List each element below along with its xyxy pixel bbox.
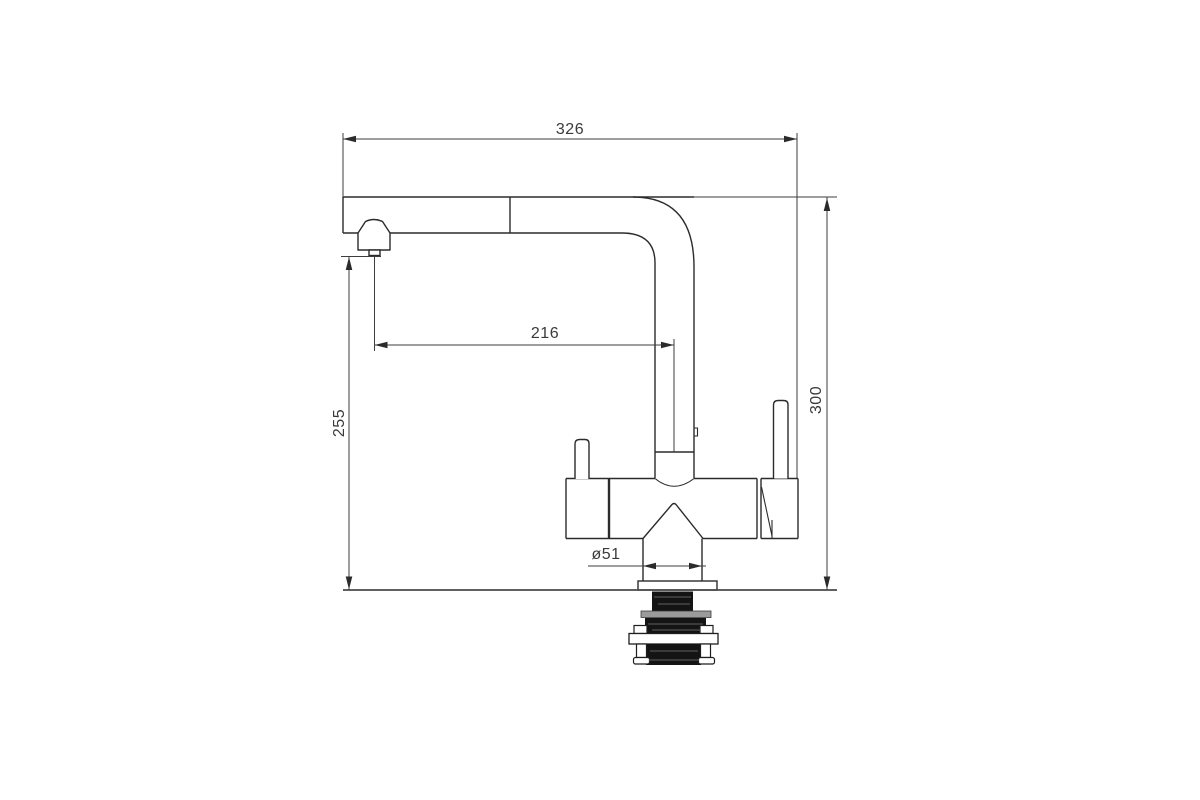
dim-label-overall-width: 326 — [556, 122, 584, 138]
mixer-body — [566, 401, 798, 539]
bolt-head-left — [634, 626, 647, 634]
dim-label-overall-height: 300 — [809, 386, 825, 414]
dim-255-arrow-bottom — [346, 577, 353, 590]
aerator-tip — [369, 250, 380, 256]
dim-label-spout-reach: 216 — [531, 326, 559, 342]
threaded-shank-lower — [646, 644, 701, 665]
threaded-shank-upper — [652, 592, 693, 612]
undercounter-mounting — [629, 592, 718, 666]
diverter-lever — [575, 440, 589, 480]
riser-socket-curve — [655, 479, 694, 487]
dim-label-nozzle-height: 255 — [332, 409, 348, 437]
elbow-inner-curve — [622, 233, 655, 263]
base-flange — [638, 581, 717, 590]
dimension-linework — [341, 133, 837, 590]
base-cone — [643, 504, 703, 539]
handle-cap-seam-diagonal — [762, 487, 773, 536]
bolt-shaft-right — [701, 644, 711, 658]
elbow-outer-curve — [633, 197, 694, 267]
dim-spout-reach-lines — [375, 257, 675, 452]
bolt-shaft-left — [637, 644, 647, 658]
dim-51-arrow-right — [689, 563, 702, 570]
base-assembly — [638, 539, 717, 591]
dim-overall-width-lines — [343, 133, 797, 478]
dim-300-arrow-bottom — [824, 577, 831, 590]
bolt-foot-right — [699, 658, 715, 665]
faucet-technical-drawing — [0, 0, 1200, 800]
riser-pipe — [655, 263, 698, 486]
mounting-bracket — [629, 634, 718, 645]
dim-216-arrow-right — [661, 342, 674, 349]
spray-head — [358, 220, 390, 251]
dim-300-arrow-top — [824, 198, 831, 211]
dim-255-arrow-top — [346, 257, 353, 270]
dim-label-base-diameter: ø51 — [591, 547, 620, 563]
dim-326-arrow-right — [784, 136, 797, 143]
spout-arm — [343, 197, 694, 267]
lock-washer — [641, 611, 711, 618]
dim-base-diameter-lines — [588, 563, 706, 570]
dim-216-arrow-left — [375, 342, 388, 349]
drawing-canvas: 326 216 255 300 ø51 — [0, 0, 1200, 800]
bolt-foot-left — [634, 658, 650, 665]
dim-326-arrow-left — [343, 136, 356, 143]
lock-nut — [645, 618, 706, 634]
bolt-head-right — [700, 626, 713, 634]
mixer-lever — [774, 401, 789, 479]
dim-51-arrow-left — [643, 563, 656, 570]
